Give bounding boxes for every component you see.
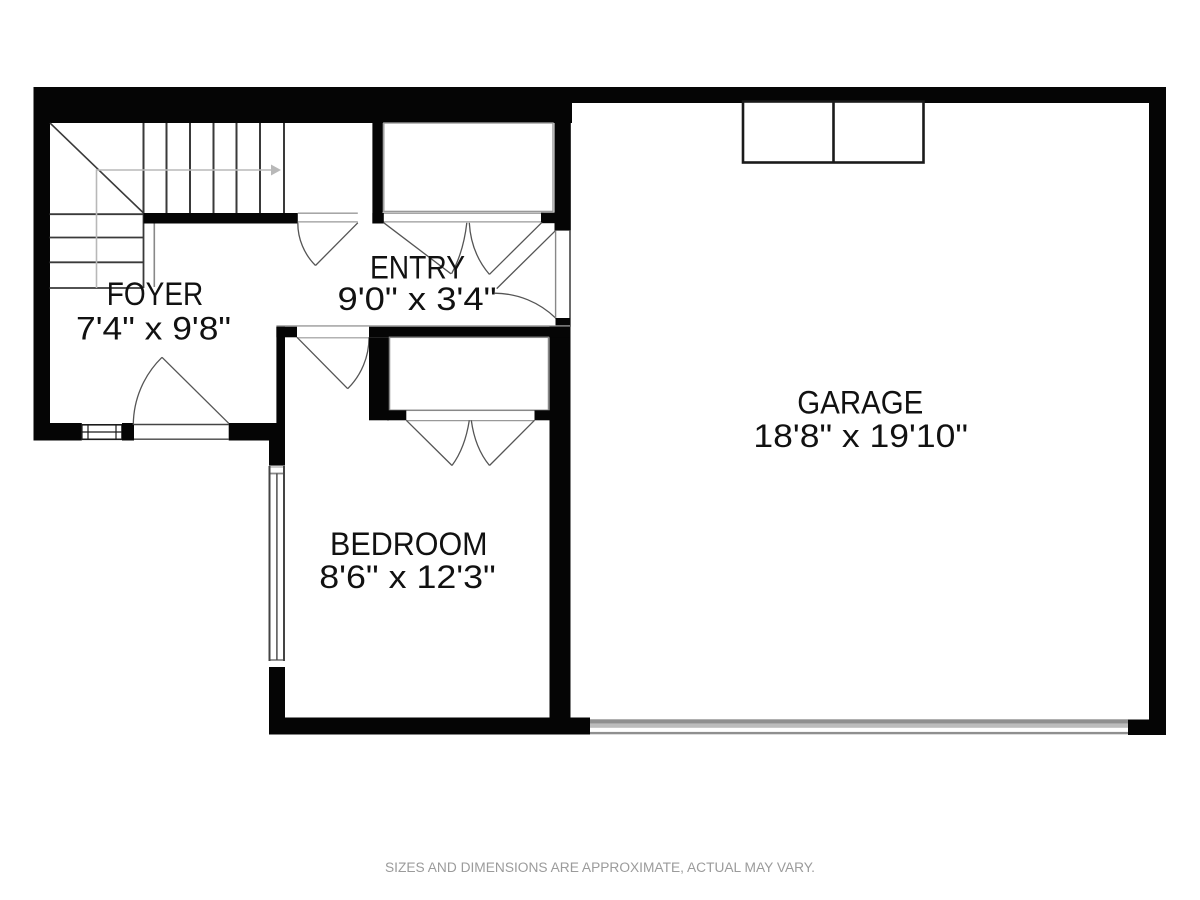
svg-text:ENTRY: ENTRY	[370, 249, 465, 285]
svg-text:7'4" x 9'8": 7'4" x 9'8"	[76, 311, 231, 347]
svg-text:GARAGE: GARAGE	[797, 385, 923, 421]
svg-text:9'0" x 3'4": 9'0" x 3'4"	[338, 281, 497, 317]
svg-text:18'8" x 19'10": 18'8" x 19'10"	[753, 418, 968, 454]
svg-text:SIZES AND DIMENSIONS ARE APPRO: SIZES AND DIMENSIONS ARE APPROXIMATE, AC…	[385, 860, 815, 875]
svg-text:BEDROOM: BEDROOM	[330, 526, 488, 562]
svg-text:FOYER: FOYER	[107, 276, 204, 312]
svg-text:8'6" x 12'3": 8'6" x 12'3"	[319, 559, 496, 595]
